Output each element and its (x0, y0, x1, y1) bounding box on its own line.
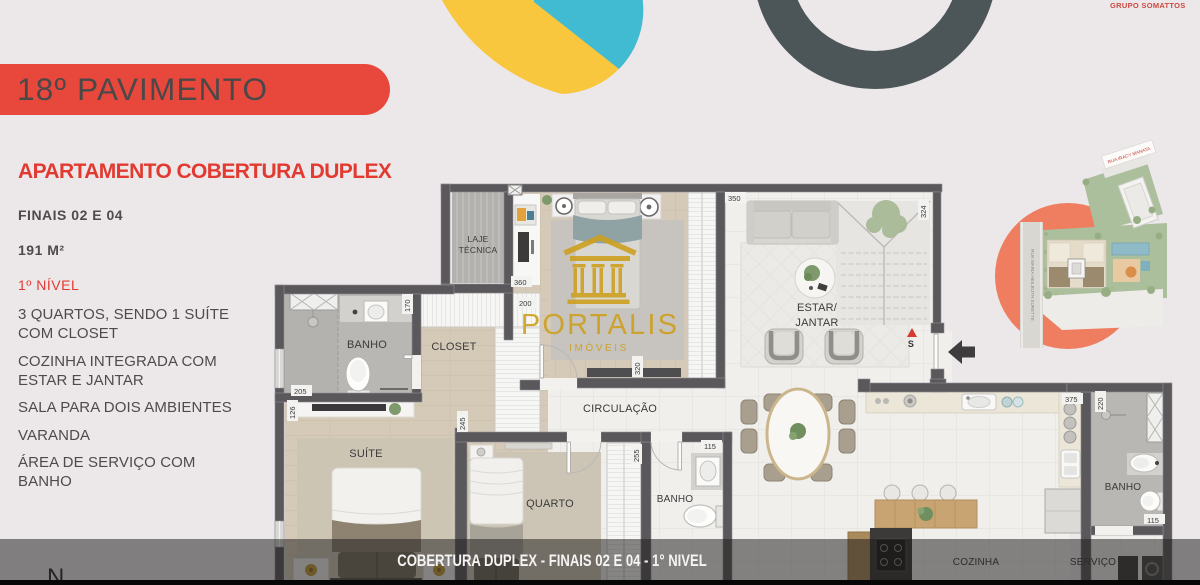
svg-text:JANTAR: JANTAR (795, 317, 838, 329)
svg-text:IMÓVEIS: IMÓVEIS (569, 341, 629, 354)
svg-text:200: 200 (519, 299, 532, 308)
svg-text:375: 375 (1065, 395, 1078, 404)
svg-text:BANHO: BANHO (1105, 482, 1142, 493)
svg-text:170: 170 (403, 299, 412, 312)
svg-text:255: 255 (632, 449, 641, 462)
svg-text:S: S (908, 339, 914, 349)
svg-text:205: 205 (294, 387, 307, 396)
svg-text:LAJE: LAJE (467, 234, 488, 244)
svg-text:ESTAR/: ESTAR/ (797, 302, 838, 314)
svg-text:324: 324 (919, 205, 928, 218)
svg-text:360: 360 (514, 278, 527, 287)
svg-text:QUARTO: QUARTO (526, 498, 574, 510)
svg-text:CIRCULAÇÃO: CIRCULAÇÃO (583, 402, 657, 415)
svg-text:115: 115 (1147, 516, 1159, 525)
svg-text:350: 350 (728, 194, 741, 203)
svg-text:SUÍTE: SUÍTE (349, 447, 382, 460)
svg-text:TÉCNICA: TÉCNICA (459, 245, 498, 255)
svg-text:126: 126 (288, 406, 297, 419)
svg-text:115: 115 (704, 442, 716, 451)
svg-text:BANHO: BANHO (657, 494, 694, 505)
svg-text:220: 220 (1096, 397, 1105, 410)
svg-text:RUA MARIA HEILBUTH SURETTE: RUA MARIA HEILBUTH SURETTE (1030, 249, 1035, 321)
svg-text:PORTALIS: PORTALIS (521, 309, 679, 341)
svg-text:320: 320 (633, 362, 642, 375)
svg-text:CLOSET: CLOSET (431, 341, 476, 353)
svg-text:245: 245 (458, 417, 467, 430)
svg-text:BANHO: BANHO (347, 339, 387, 351)
